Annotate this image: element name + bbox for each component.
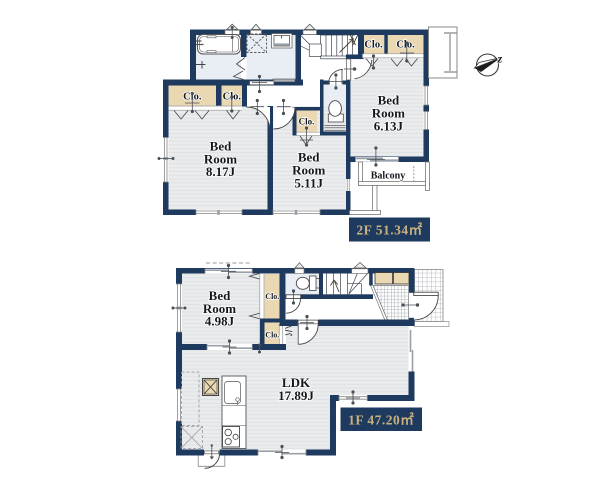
- svg-text:17.89J: 17.89J: [278, 388, 314, 403]
- svg-text:5.11J: 5.11J: [294, 175, 323, 190]
- svg-text:Balcony: Balcony: [371, 171, 405, 182]
- svg-text:8.17J: 8.17J: [206, 164, 236, 179]
- svg-text:Clo.: Clo.: [364, 40, 383, 51]
- svg-text:Clo.: Clo.: [265, 331, 279, 340]
- svg-text:Clo.: Clo.: [299, 117, 315, 127]
- svg-text:6.13J: 6.13J: [374, 118, 404, 133]
- svg-text:2F 51.34㎡: 2F 51.34㎡: [356, 222, 422, 238]
- svg-text:Clo.: Clo.: [396, 40, 415, 51]
- svg-text:Clo.: Clo.: [265, 292, 279, 301]
- svg-text:1F 47.20㎡: 1F 47.20㎡: [348, 411, 414, 427]
- svg-text:z: z: [497, 52, 503, 66]
- svg-text:4.98J: 4.98J: [205, 314, 235, 329]
